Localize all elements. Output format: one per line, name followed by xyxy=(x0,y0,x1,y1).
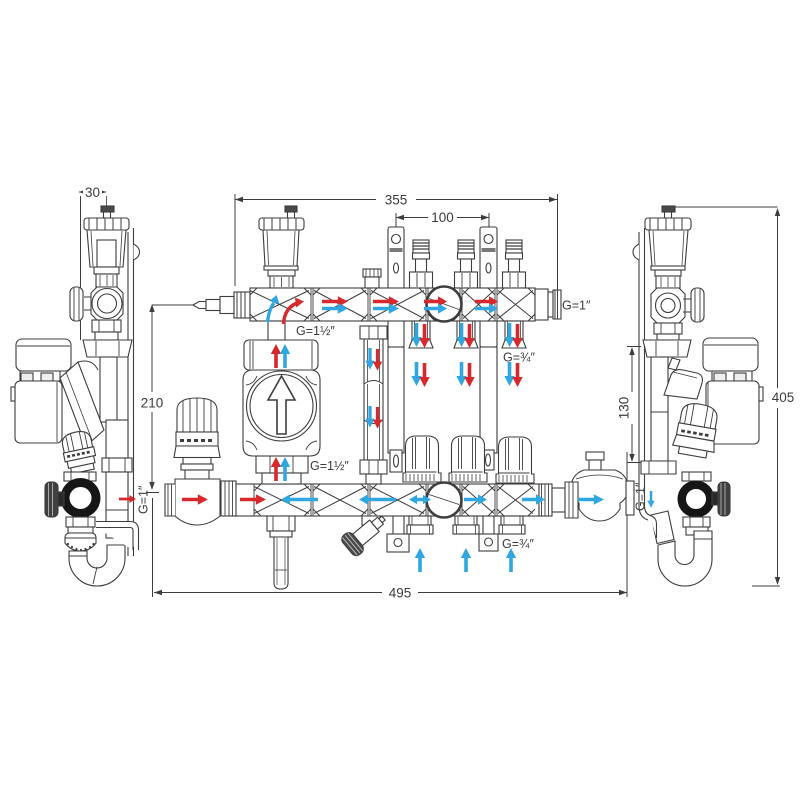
svg-text:405: 405 xyxy=(772,390,795,405)
svg-text:G=1″: G=1″ xyxy=(137,485,151,514)
svg-text:495: 495 xyxy=(389,586,412,601)
svg-text:G=¾″: G=¾″ xyxy=(502,537,534,551)
svg-text:355: 355 xyxy=(385,193,408,208)
svg-text:G=1″: G=1″ xyxy=(634,482,648,511)
svg-text:G=¾″: G=¾″ xyxy=(503,351,535,365)
svg-text:G=1½″: G=1½″ xyxy=(296,324,335,338)
svg-text:210: 210 xyxy=(141,396,164,411)
svg-text:G=1″: G=1″ xyxy=(562,299,591,313)
svg-text:100: 100 xyxy=(431,210,454,225)
svg-text:130: 130 xyxy=(617,397,632,420)
svg-text:30: 30 xyxy=(85,185,100,200)
svg-text:G=1½″: G=1½″ xyxy=(310,459,349,473)
